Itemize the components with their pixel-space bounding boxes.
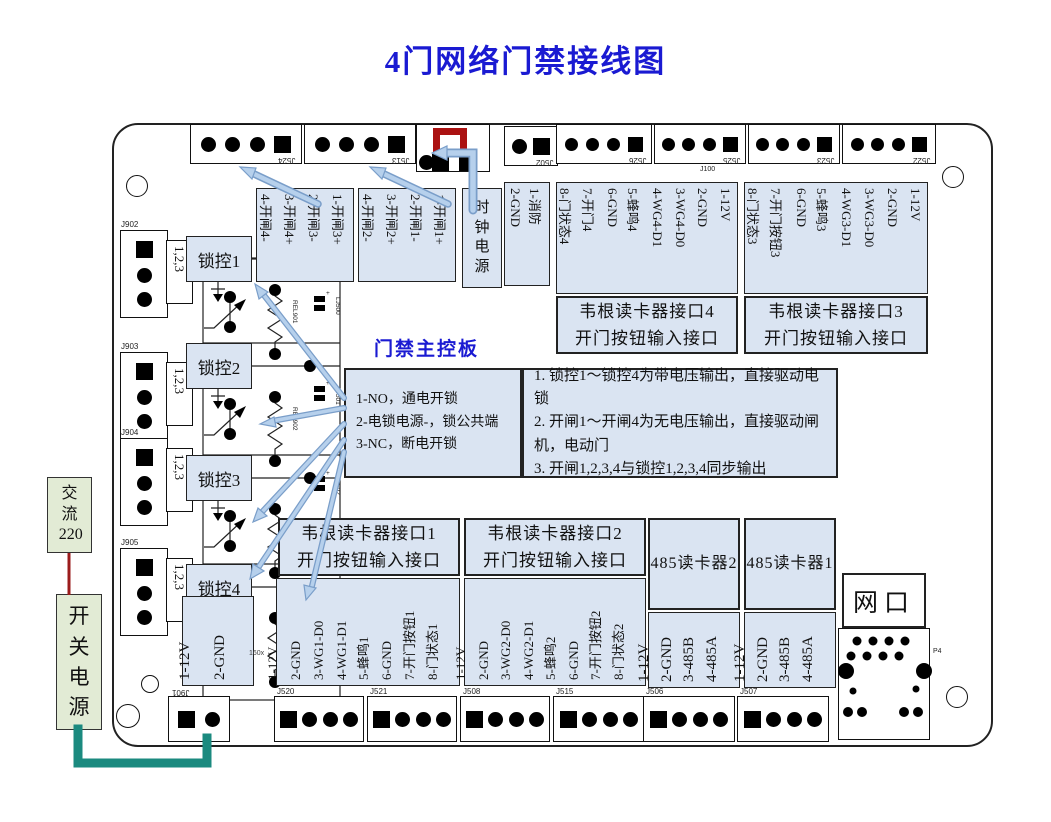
wiegand2-title: 韦根读卡器接口2: [487, 520, 623, 547]
fire-alarm-pins: 2-GND 1-消防: [504, 182, 550, 286]
connector-label-j520: J520: [277, 687, 294, 696]
clock-battery-connector: [416, 124, 490, 172]
connector-j525: J525: [654, 124, 746, 164]
connector-j513: J513: [304, 124, 416, 164]
connector-j520: [274, 696, 364, 742]
note-line: 1-NO，通电开锁: [356, 389, 510, 411]
ac-220-box: 交 流 220: [47, 477, 92, 553]
connector-label: J523: [817, 156, 834, 165]
wiegand3-subtitle: 开门按钮输入接口: [764, 325, 908, 352]
wiegand1-title-box: 韦根读卡器接口1 开门按钮输入接口: [278, 518, 460, 576]
mount-hole: [942, 166, 964, 188]
wiegand1-subtitle: 开门按钮输入接口: [297, 547, 441, 574]
lock-control-2: 锁控2: [186, 343, 252, 389]
switch-psu-box: 开 关 电 源: [56, 594, 102, 730]
wiegand3-title: 韦根读卡器接口3: [768, 298, 904, 325]
note-line: 3-NC，断电开锁: [356, 434, 510, 456]
connector-j903: [120, 352, 168, 440]
network-port-box: 网口: [842, 573, 926, 628]
connector-j905: [120, 548, 168, 636]
wiegand4-pin-box: 8-门状态4 7-开门4 6-GND 5-蜂鸣4 4-WG4-D1 3-WG4-…: [556, 182, 738, 294]
rs485-reader1-box: 485读卡器1: [744, 518, 836, 610]
label-j100: J100: [700, 166, 715, 173]
connector-j515: [553, 696, 645, 742]
wiegand4-title-box: 韦根读卡器接口4 开门按钮输入接口: [556, 296, 738, 354]
wiegand3-pin-box: 8-门状态3 7-开门按钮3 6-GND 5-蜂鸣3 4-WG3-D1 3-WG…: [744, 182, 928, 294]
rs485-reader1-pins: 1-12V 2-GND 3-485B 4-485A: [744, 612, 836, 688]
connector-j902: [120, 230, 168, 318]
board-name-label: 门禁主控板: [374, 334, 479, 361]
connector-j508: [460, 696, 550, 742]
gate-output-pins-3-4: 4-开闸4- 3-开闸4+ 2-开闸3- 1-开闸3+: [256, 188, 354, 282]
connector-j901: [168, 696, 230, 742]
wiegand1-title: 韦根读卡器接口1: [301, 520, 437, 547]
note-line: 2. 开闸1～开闸4为无电压输出，直接驱动闸机，电动门: [534, 411, 826, 458]
wiegand1-pin-box: 1-12V 2-GND 3-WG1-D0 4-WG1-D1 5-蜂鸣1 6-GN…: [276, 578, 460, 686]
gate-output-pins-1-2: 4-开闸2- 3-开闸2+ 2-开闸1- 1-开闸1+: [358, 188, 456, 282]
wiegand4-title: 韦根读卡器接口4: [579, 298, 715, 325]
lock-control-1: 锁控1: [186, 236, 252, 282]
connector-label-j905: J905: [121, 538, 138, 547]
connector-label-j521: J521: [370, 687, 387, 696]
connector-label: J526: [629, 156, 646, 165]
connector-j522: J522: [842, 124, 936, 164]
page-title: 4门网络门禁接线图: [0, 36, 1051, 81]
output-rules-note: 1. 锁控1～锁控4为带电压输出，直接驱动电锁 2. 开闸1～开闸4为无电压输出…: [522, 368, 838, 478]
mount-hole: [116, 704, 140, 728]
connector-label: J513: [392, 156, 409, 165]
note-line: 2-电锁电源-，锁公共端: [356, 412, 510, 434]
lock-pinout-note: 1-NO，通电开锁 2-电锁电源-，锁公共端 3-NC，断电开锁: [344, 368, 522, 478]
connector-label: J502: [536, 158, 553, 167]
connector-j904: [120, 438, 168, 526]
wiegand2-title-box: 韦根读卡器接口2 开门按钮输入接口: [464, 518, 646, 576]
mount-hole: [141, 675, 159, 693]
mount-hole: [126, 175, 148, 197]
connector-label-j506: J506: [646, 687, 663, 696]
connector-j506: [643, 696, 735, 742]
connector-label-j903: J903: [121, 342, 138, 351]
connector-label-j515: J515: [556, 687, 573, 696]
connector-j526: J526: [556, 124, 652, 164]
connector-label-j508: J508: [463, 687, 480, 696]
connector-j502: J502: [504, 126, 558, 166]
rs485-reader2-pins: 1-12V 2-GND 3-485B 4-485A: [648, 612, 740, 688]
connector-j521: [367, 696, 457, 742]
wiegand2-pin-box: 1-12V 2-GND 3-WG2-D0 4-WG2-D1 5-蜂鸣2 6-GN…: [464, 578, 646, 686]
red-jumper: [433, 128, 440, 155]
rj45-jack: [838, 628, 930, 740]
connector-j507: [737, 696, 829, 742]
size-note: 160x: [249, 650, 264, 657]
note-line: 3. 开闸1,2,3,4与锁控1,2,3,4同步输出: [534, 458, 826, 481]
wiegand3-title-box: 韦根读卡器接口3 开门按钮输入接口: [744, 296, 928, 354]
rs485-reader2-box: 485读卡器2: [648, 518, 740, 610]
clock-power-box: 时 钟 电 源: [462, 188, 502, 288]
connector-label-j904: J904: [121, 428, 138, 437]
power-input-pins: 1-12V 2-GND: [182, 596, 254, 686]
wiegand4-subtitle: 开门按钮输入接口: [575, 325, 719, 352]
connector-label-j507: J507: [740, 687, 757, 696]
note-line: 1. 锁控1～锁控4为带电压输出，直接驱动电锁: [534, 365, 826, 412]
red-jumper: [460, 128, 467, 155]
connector-j524: J524: [190, 124, 302, 164]
wiegand2-subtitle: 开门按钮输入接口: [483, 547, 627, 574]
mount-hole: [946, 686, 968, 708]
wiring-diagram: 4门网络门禁接线图 REL901 REL902 REL903: [0, 0, 1051, 822]
label-p4: P4: [933, 648, 942, 655]
connector-j523: J523: [748, 124, 840, 164]
connector-label-j902: J902: [121, 220, 138, 229]
connector-label: J525: [723, 156, 740, 165]
connector-label: J522: [913, 156, 930, 165]
connector-label: J524: [278, 156, 295, 165]
lock-control-3: 锁控3: [186, 455, 252, 501]
